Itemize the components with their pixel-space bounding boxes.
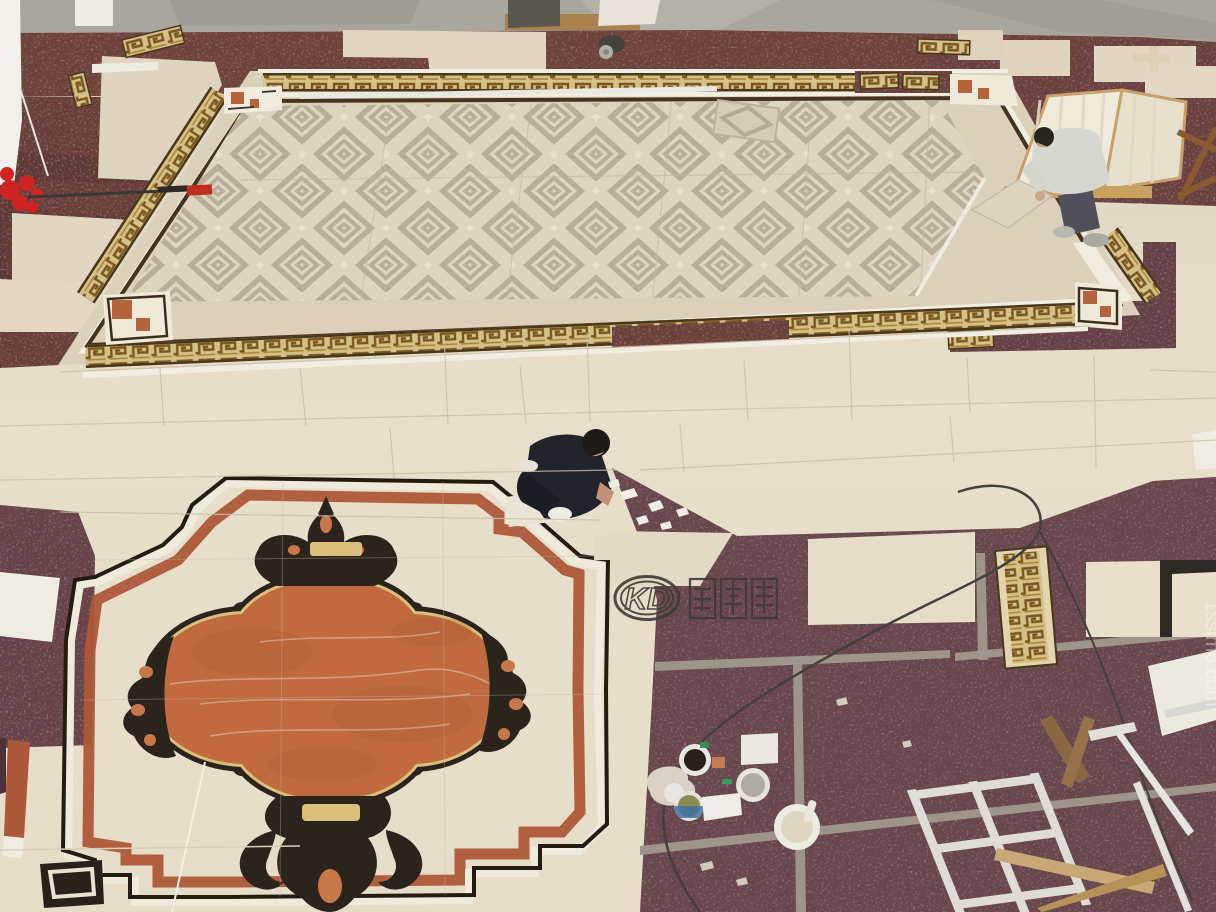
svg-text:KD: KD xyxy=(625,581,670,616)
svg-text:1ssim6.com: 1ssim6.com xyxy=(1201,600,1216,707)
